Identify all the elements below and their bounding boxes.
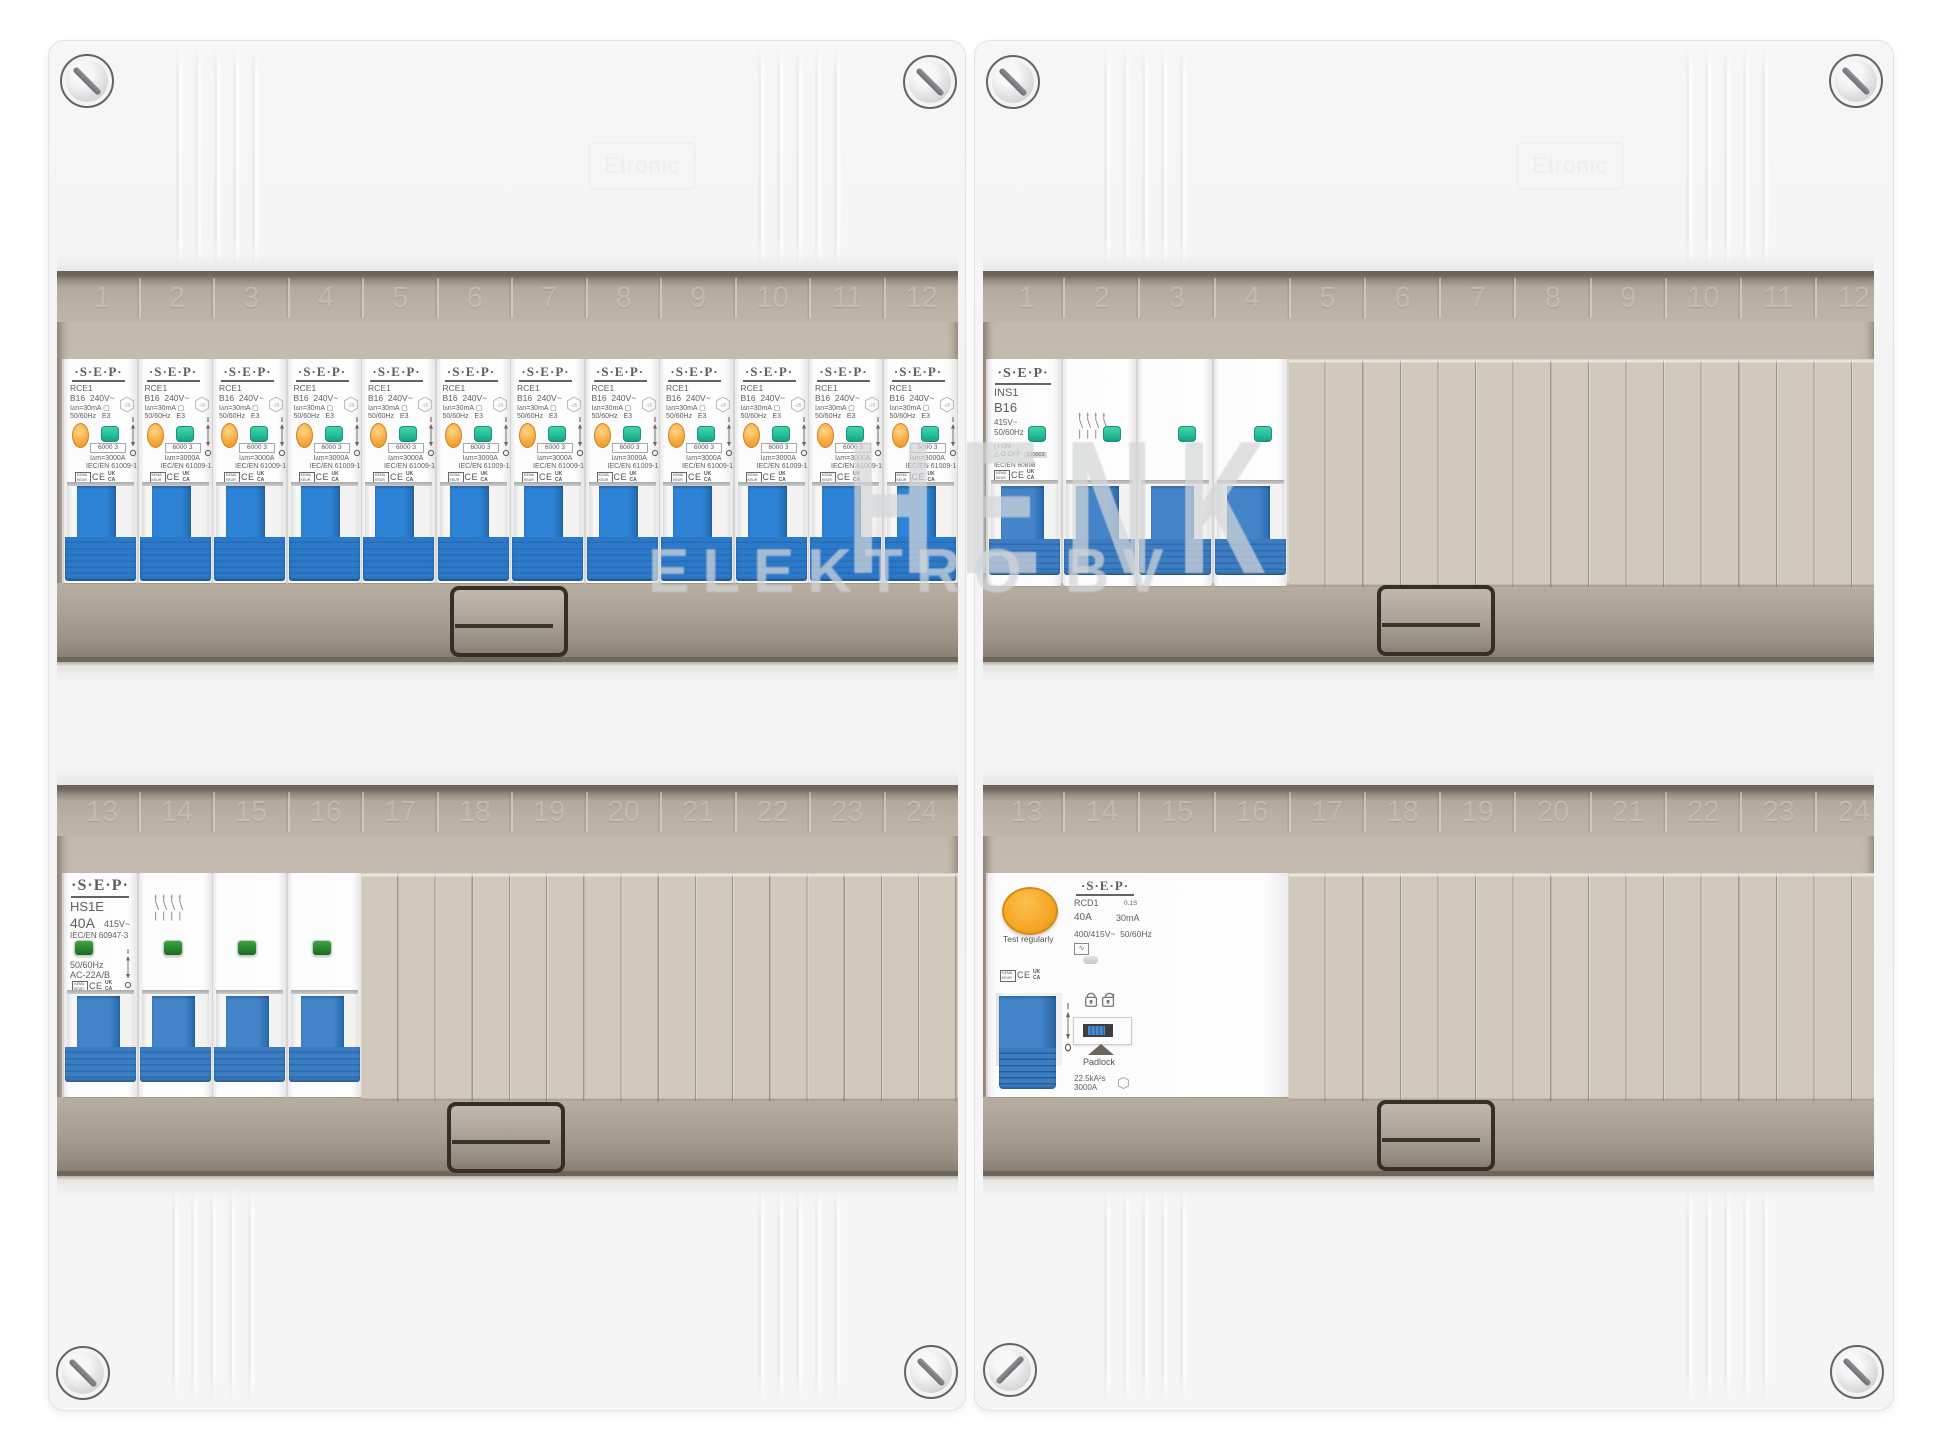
svg-text:-25: -25 [496,403,503,408]
svg-text:-25: -25 [124,403,131,408]
svg-text:-25: -25 [273,403,280,408]
svg-text:-25: -25 [794,403,801,408]
svg-text:-25: -25 [720,403,727,408]
svg-text:-25: -25 [645,403,652,408]
svg-text:-25: -25 [422,403,429,408]
svg-text:-25: -25 [571,403,578,408]
svg-text:-25: -25 [347,403,354,408]
svg-text:-25: -25 [198,403,205,408]
